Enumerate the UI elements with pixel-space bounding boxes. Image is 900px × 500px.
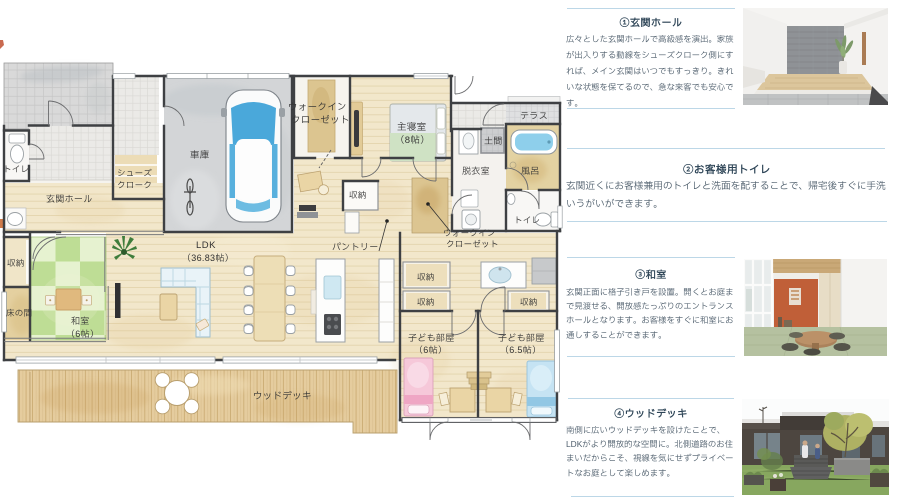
svg-text:クローゼット: クローゼット: [446, 239, 499, 249]
svg-text:（6帖）: （6帖）: [66, 329, 99, 339]
svg-text:子ども部屋: 子ども部屋: [498, 333, 545, 343]
svg-text:テラス: テラス: [520, 111, 548, 121]
svg-text:トイレ: トイレ: [3, 164, 29, 174]
svg-text:和室: 和室: [71, 316, 90, 326]
svg-text:収納: 収納: [417, 297, 435, 307]
svg-text:トイレ: トイレ: [514, 215, 540, 225]
svg-text:ウォークイン: ウォークイン: [288, 102, 347, 113]
svg-text:脱衣室: 脱衣室: [462, 166, 490, 176]
svg-text:収納: 収納: [349, 190, 367, 200]
svg-text:（6帖）: （6帖）: [414, 345, 447, 355]
svg-text:土間: 土間: [484, 136, 503, 146]
svg-text:収納: 収納: [520, 297, 538, 307]
svg-text:ウッドデッキ: ウッドデッキ: [253, 391, 312, 402]
svg-text:主寝室: 主寝室: [397, 122, 426, 133]
svg-text:シューズ: シューズ: [117, 168, 152, 178]
svg-text:（36.83帖）: （36.83帖）: [182, 253, 234, 263]
svg-text:ウォークイン: ウォークイン: [443, 228, 496, 238]
svg-text:子ども部屋: 子ども部屋: [408, 333, 455, 343]
svg-text:玄関ホール: 玄関ホール: [46, 194, 93, 204]
svg-text:（6.5帖）: （6.5帖）: [500, 345, 541, 355]
svg-text:床の間: 床の間: [6, 308, 32, 318]
svg-text:LDK: LDK: [196, 240, 216, 251]
svg-text:クローク: クローク: [117, 180, 152, 190]
svg-text:（8帖）: （8帖）: [395, 135, 430, 146]
svg-text:車庫: 車庫: [190, 149, 210, 161]
svg-text:パントリー: パントリー: [332, 242, 379, 252]
svg-text:収納: 収納: [417, 272, 435, 282]
svg-text:クローゼット: クローゼット: [291, 114, 350, 126]
svg-text:風呂: 風呂: [521, 166, 540, 176]
svg-text:収納: 収納: [7, 258, 25, 268]
